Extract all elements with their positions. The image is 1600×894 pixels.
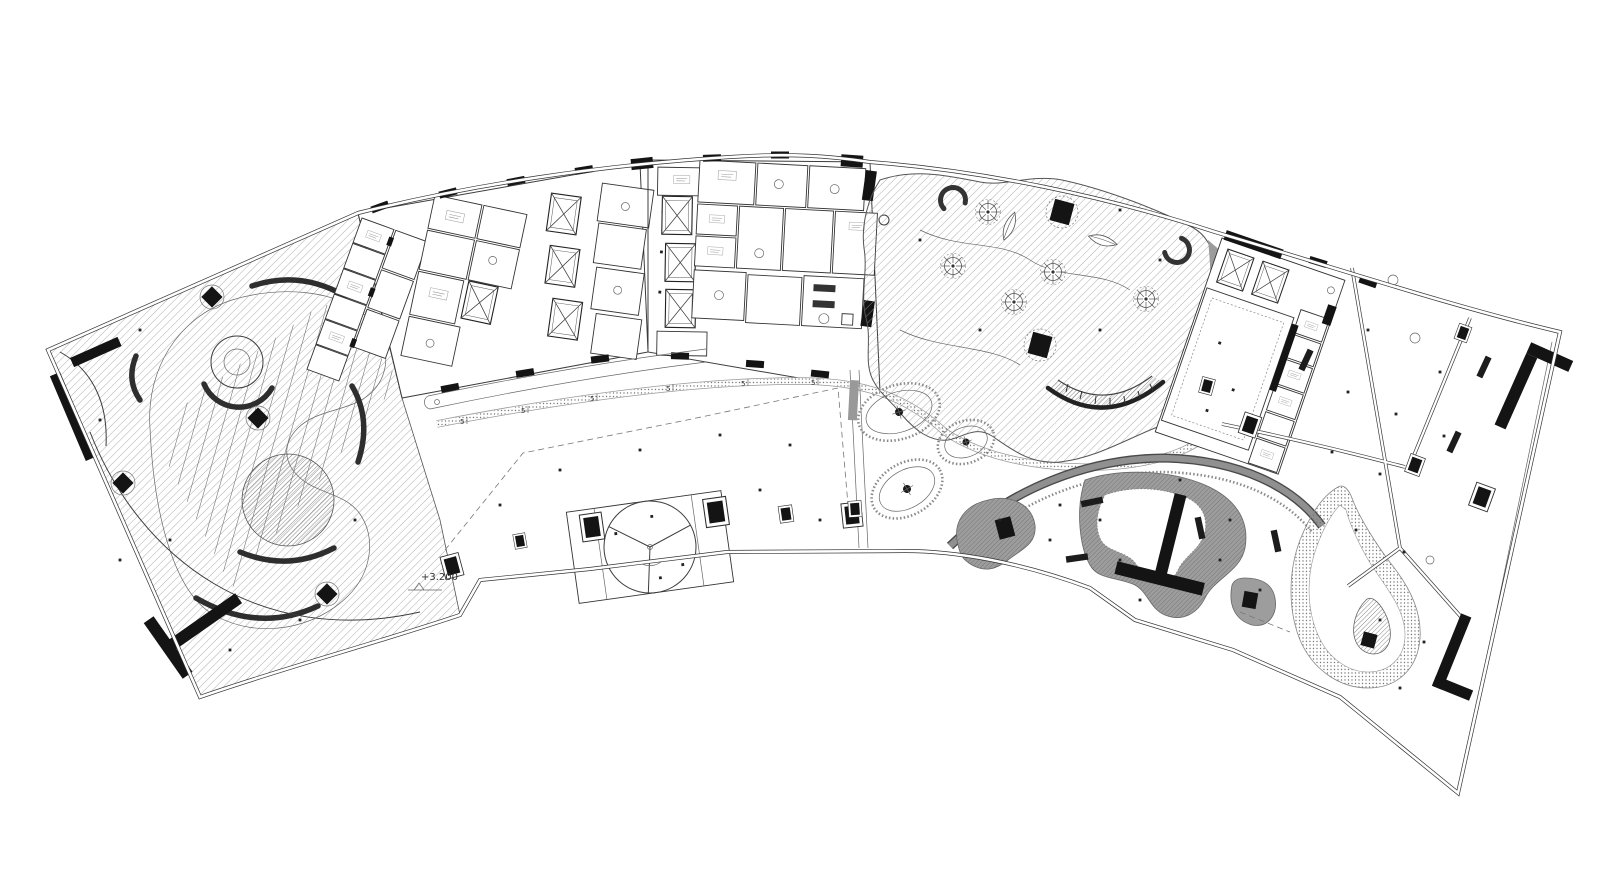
column-diamond [246,406,270,430]
core-center-rooms [692,160,880,329]
hatched-disc-feature [242,454,334,546]
bench [1446,431,1461,454]
tree-icon [976,200,1001,225]
elevator-icon [665,243,696,282]
column [579,512,605,542]
column [1469,482,1496,512]
column [778,505,794,523]
column [1454,323,1472,343]
elevator-icon [665,289,696,328]
tree-icon [1041,260,1066,285]
elevator-icon [545,245,580,287]
floor-plan-page: 5 5 5 5 5 5 +3.200 [0,0,1600,894]
core-left-mid-rooms [401,195,527,375]
svg-text:5: 5 [521,407,525,415]
svg-text:5: 5 [590,395,594,403]
elevation-label: +3.200 [421,572,458,583]
elevator-icon [662,196,693,235]
bench [1476,356,1491,379]
tree-icon [1134,287,1159,312]
column [513,533,527,550]
tree-icon [1002,290,1027,315]
elevator-icon [548,298,583,340]
column-diamond [111,471,135,495]
column-diamond [200,285,224,309]
right-wing-shear-walls [1432,342,1573,700]
tree-icon [941,254,966,279]
bench [1066,553,1089,562]
elevator-icon [546,193,581,235]
floor-plan-canvas: 5 5 5 5 5 5 +3.200 [0,0,1600,894]
column [1405,453,1426,476]
column-diamond [315,582,339,606]
walkway-marker-label: 5 [460,418,464,426]
column [848,500,862,517]
svg-text:5: 5 [741,380,745,388]
column [703,496,730,527]
planter-ellipse [861,447,953,530]
bench [1271,530,1282,553]
svg-text:5: 5 [666,385,670,393]
svg-text:5: 5 [811,379,815,387]
curved-terrace [848,458,1322,632]
